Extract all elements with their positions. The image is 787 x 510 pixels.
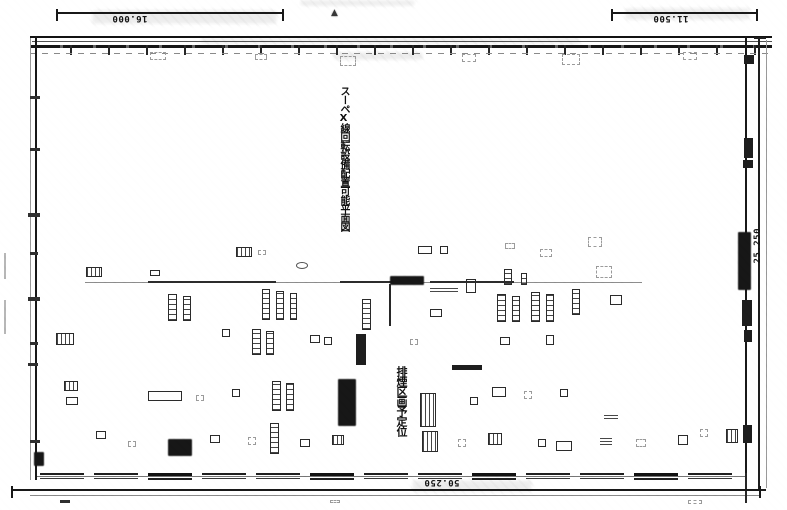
plan-symbol bbox=[572, 289, 580, 315]
dimension-line-right bbox=[758, 38, 760, 490]
plan-symbol bbox=[540, 249, 552, 257]
plan-symbol bbox=[330, 500, 340, 503]
plan-symbol bbox=[364, 473, 408, 479]
plan-symbol bbox=[94, 473, 138, 479]
plan-symbol bbox=[332, 435, 344, 445]
plan-symbol bbox=[688, 473, 732, 479]
plan-symbol bbox=[505, 243, 515, 249]
plan-symbols-layer bbox=[0, 0, 787, 510]
plan-symbol bbox=[310, 335, 320, 343]
plan-symbol bbox=[362, 299, 371, 330]
plan-symbol bbox=[150, 270, 160, 276]
plan-symbol bbox=[86, 267, 102, 277]
plan-symbol bbox=[4, 253, 6, 279]
plan-symbol bbox=[276, 291, 284, 320]
plan-symbol bbox=[596, 266, 612, 278]
plan-symbol bbox=[462, 54, 476, 62]
plan-symbol bbox=[324, 337, 332, 345]
plan-symbol bbox=[440, 246, 448, 254]
plan-symbol bbox=[688, 500, 702, 504]
plan-symbol bbox=[683, 52, 697, 60]
plan-symbol bbox=[580, 473, 624, 479]
plan-symbol bbox=[678, 435, 688, 445]
plan-symbol bbox=[196, 395, 204, 401]
plan-symbol bbox=[556, 441, 572, 451]
plan-symbol bbox=[738, 232, 751, 290]
plan-symbol bbox=[148, 473, 192, 480]
plan-symbol bbox=[34, 452, 44, 466]
plan-symbol bbox=[466, 279, 476, 293]
plan-symbol bbox=[470, 397, 478, 405]
plan-symbol bbox=[28, 363, 38, 366]
plan-symbol bbox=[512, 296, 520, 322]
plan-symbol bbox=[338, 379, 356, 426]
plan-symbol bbox=[236, 247, 252, 257]
plan-symbol bbox=[521, 273, 527, 285]
plan-symbol bbox=[524, 391, 532, 399]
plan-symbol bbox=[40, 473, 84, 479]
section-marker-icon: ▲ bbox=[331, 8, 338, 18]
plan-symbol bbox=[546, 335, 554, 345]
plan-symbol bbox=[148, 281, 276, 283]
plan-symbol bbox=[28, 297, 40, 301]
plan-symbol bbox=[210, 435, 220, 443]
plan-symbol bbox=[743, 160, 753, 168]
plan-symbol bbox=[150, 52, 166, 60]
plan-symbol bbox=[390, 276, 424, 285]
dimension-label-top-right: 11.500 bbox=[653, 13, 689, 23]
plan-symbol bbox=[30, 148, 40, 151]
plan-symbol bbox=[726, 429, 738, 443]
plan-symbol bbox=[256, 473, 300, 479]
plan-symbol bbox=[30, 440, 40, 443]
plan-symbol bbox=[168, 294, 177, 321]
plan-symbol bbox=[262, 289, 270, 320]
plan-symbol bbox=[4, 300, 6, 334]
plan-symbol bbox=[183, 296, 191, 321]
plan-symbol bbox=[410, 339, 418, 345]
plan-symbol bbox=[30, 96, 40, 99]
plan-symbol bbox=[300, 439, 310, 447]
plan-symbol bbox=[66, 397, 78, 405]
plan-symbol bbox=[418, 246, 432, 254]
plan-symbol bbox=[290, 293, 297, 320]
plan-symbol bbox=[272, 381, 281, 411]
plan-symbol bbox=[610, 295, 622, 305]
plan-symbol bbox=[255, 54, 267, 60]
plan-symbol bbox=[744, 138, 753, 158]
plan-symbol bbox=[222, 329, 230, 337]
plan-symbol bbox=[531, 292, 540, 322]
plan-symbol bbox=[562, 54, 580, 65]
dimension-line-top-left bbox=[57, 12, 283, 14]
plan-symbol bbox=[128, 441, 136, 447]
plan-symbol bbox=[743, 425, 752, 443]
plan-symbol bbox=[96, 431, 106, 439]
plan-symbol bbox=[500, 337, 510, 345]
plan-symbol bbox=[270, 423, 279, 454]
plan-symbol bbox=[420, 393, 436, 427]
vertical-text-lower: 排煙区画予定位 bbox=[396, 366, 407, 460]
plan-symbol bbox=[526, 473, 570, 479]
plan-symbol bbox=[64, 381, 78, 391]
plan-symbol bbox=[560, 389, 568, 397]
plan-symbol bbox=[28, 213, 40, 217]
plan-symbol bbox=[497, 294, 506, 322]
plan-symbol bbox=[389, 284, 391, 326]
plan-symbol bbox=[430, 309, 442, 317]
plan-symbol bbox=[286, 383, 294, 411]
plan-symbol bbox=[600, 437, 612, 445]
plan-symbol bbox=[634, 473, 678, 480]
dimension-label-right: 25.250 bbox=[753, 228, 763, 264]
dimension-label-bottom: 50.250 bbox=[424, 477, 460, 487]
dimension-label-top-left: 16.000 bbox=[112, 13, 148, 23]
plan-symbol bbox=[232, 389, 240, 397]
plan-symbol bbox=[258, 250, 266, 255]
plan-symbol bbox=[422, 431, 438, 452]
plan-symbol bbox=[700, 429, 708, 437]
plan-symbol bbox=[296, 262, 308, 269]
plan-symbol bbox=[744, 55, 754, 64]
plan-symbol bbox=[340, 56, 356, 66]
plan-symbol bbox=[30, 342, 38, 345]
plan-symbol bbox=[636, 439, 646, 447]
plan-symbol bbox=[356, 334, 366, 365]
plan-symbol bbox=[745, 473, 747, 503]
plan-symbol bbox=[266, 331, 274, 355]
plan-symbol bbox=[430, 286, 458, 292]
plan-symbol bbox=[202, 473, 246, 479]
plan-symbol bbox=[252, 329, 261, 355]
plan-symbol bbox=[60, 500, 70, 503]
plan-symbol bbox=[504, 269, 512, 285]
plan-symbol bbox=[56, 333, 74, 345]
plan-symbol bbox=[452, 365, 482, 370]
plan-symbol bbox=[604, 413, 618, 419]
plan-symbol bbox=[538, 439, 546, 447]
dimension-line-bottom bbox=[12, 489, 760, 491]
plan-symbol bbox=[458, 439, 466, 447]
plan-symbol bbox=[248, 437, 256, 445]
plan-symbol bbox=[588, 237, 602, 247]
vertical-text-main: スーペX線回転設備配置可能平面図 bbox=[338, 86, 348, 238]
plan-symbol bbox=[546, 294, 554, 322]
plan-symbol bbox=[744, 330, 752, 342]
scanned-floorplan-page: 16.000 11.500 ▲ 25.250 50.250 スーペX線回転設備配… bbox=[0, 0, 787, 510]
plan-symbol bbox=[492, 387, 506, 397]
plan-symbol bbox=[742, 300, 752, 326]
plan-symbol bbox=[168, 439, 192, 456]
plan-symbol bbox=[310, 473, 354, 480]
plan-symbol bbox=[30, 252, 38, 255]
plan-symbol bbox=[488, 433, 502, 445]
plan-symbol bbox=[148, 391, 182, 401]
plan-symbol bbox=[472, 473, 516, 480]
